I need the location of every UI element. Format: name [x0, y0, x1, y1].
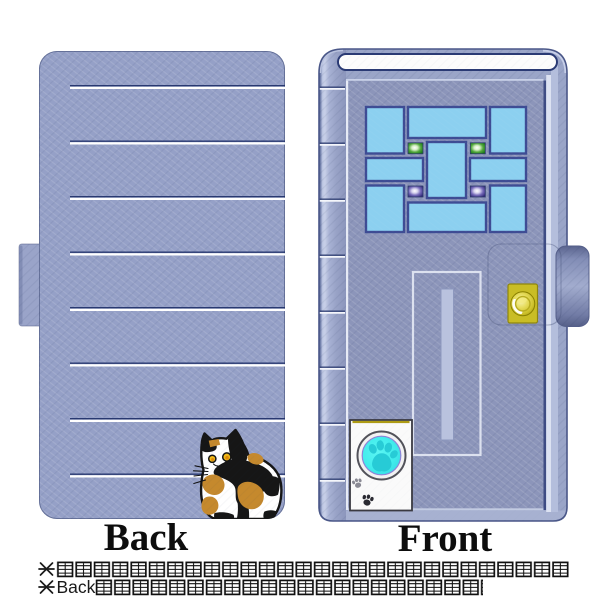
svg-text:Back: Back: [57, 577, 96, 597]
svg-text:Front: Front: [398, 517, 493, 560]
svg-text:Back: Back: [104, 516, 189, 559]
